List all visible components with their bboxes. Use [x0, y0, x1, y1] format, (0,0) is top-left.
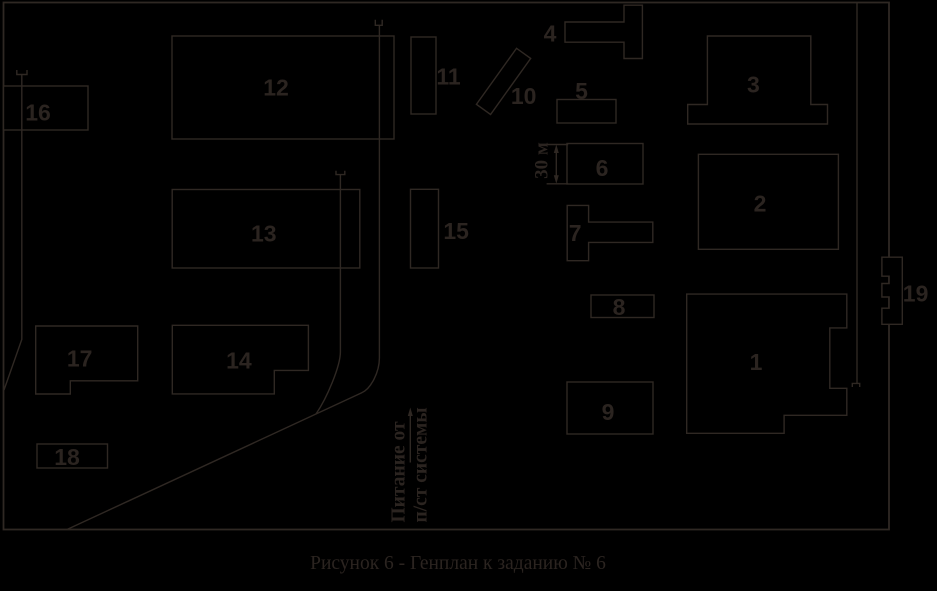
svg-text:Питание от: Питание от — [389, 421, 410, 522]
svg-text:4: 4 — [544, 20, 557, 46]
svg-text:18: 18 — [54, 444, 80, 470]
svg-text:10: 10 — [511, 83, 537, 109]
svg-text:9: 9 — [602, 399, 615, 425]
svg-text:15: 15 — [443, 218, 469, 244]
svg-text:19: 19 — [903, 280, 929, 306]
svg-text:2: 2 — [754, 190, 767, 216]
svg-text:3: 3 — [747, 71, 760, 97]
svg-text:Рисунок 6 - Генплан к заданию: Рисунок 6 - Генплан к заданию № 6 — [310, 553, 606, 574]
svg-text:14: 14 — [226, 348, 252, 374]
svg-text:1: 1 — [750, 349, 763, 375]
svg-text:5: 5 — [575, 78, 588, 104]
svg-text:30 м: 30 м — [531, 142, 552, 179]
svg-text:12: 12 — [263, 74, 289, 100]
svg-text:п/ст системы: п/ст системы — [410, 407, 431, 522]
svg-text:17: 17 — [67, 346, 93, 372]
svg-text:11: 11 — [436, 63, 461, 89]
svg-text:7: 7 — [569, 220, 582, 246]
svg-text:13: 13 — [251, 221, 277, 247]
svg-text:6: 6 — [596, 155, 609, 181]
svg-text:16: 16 — [25, 100, 51, 126]
svg-text:8: 8 — [613, 294, 626, 320]
